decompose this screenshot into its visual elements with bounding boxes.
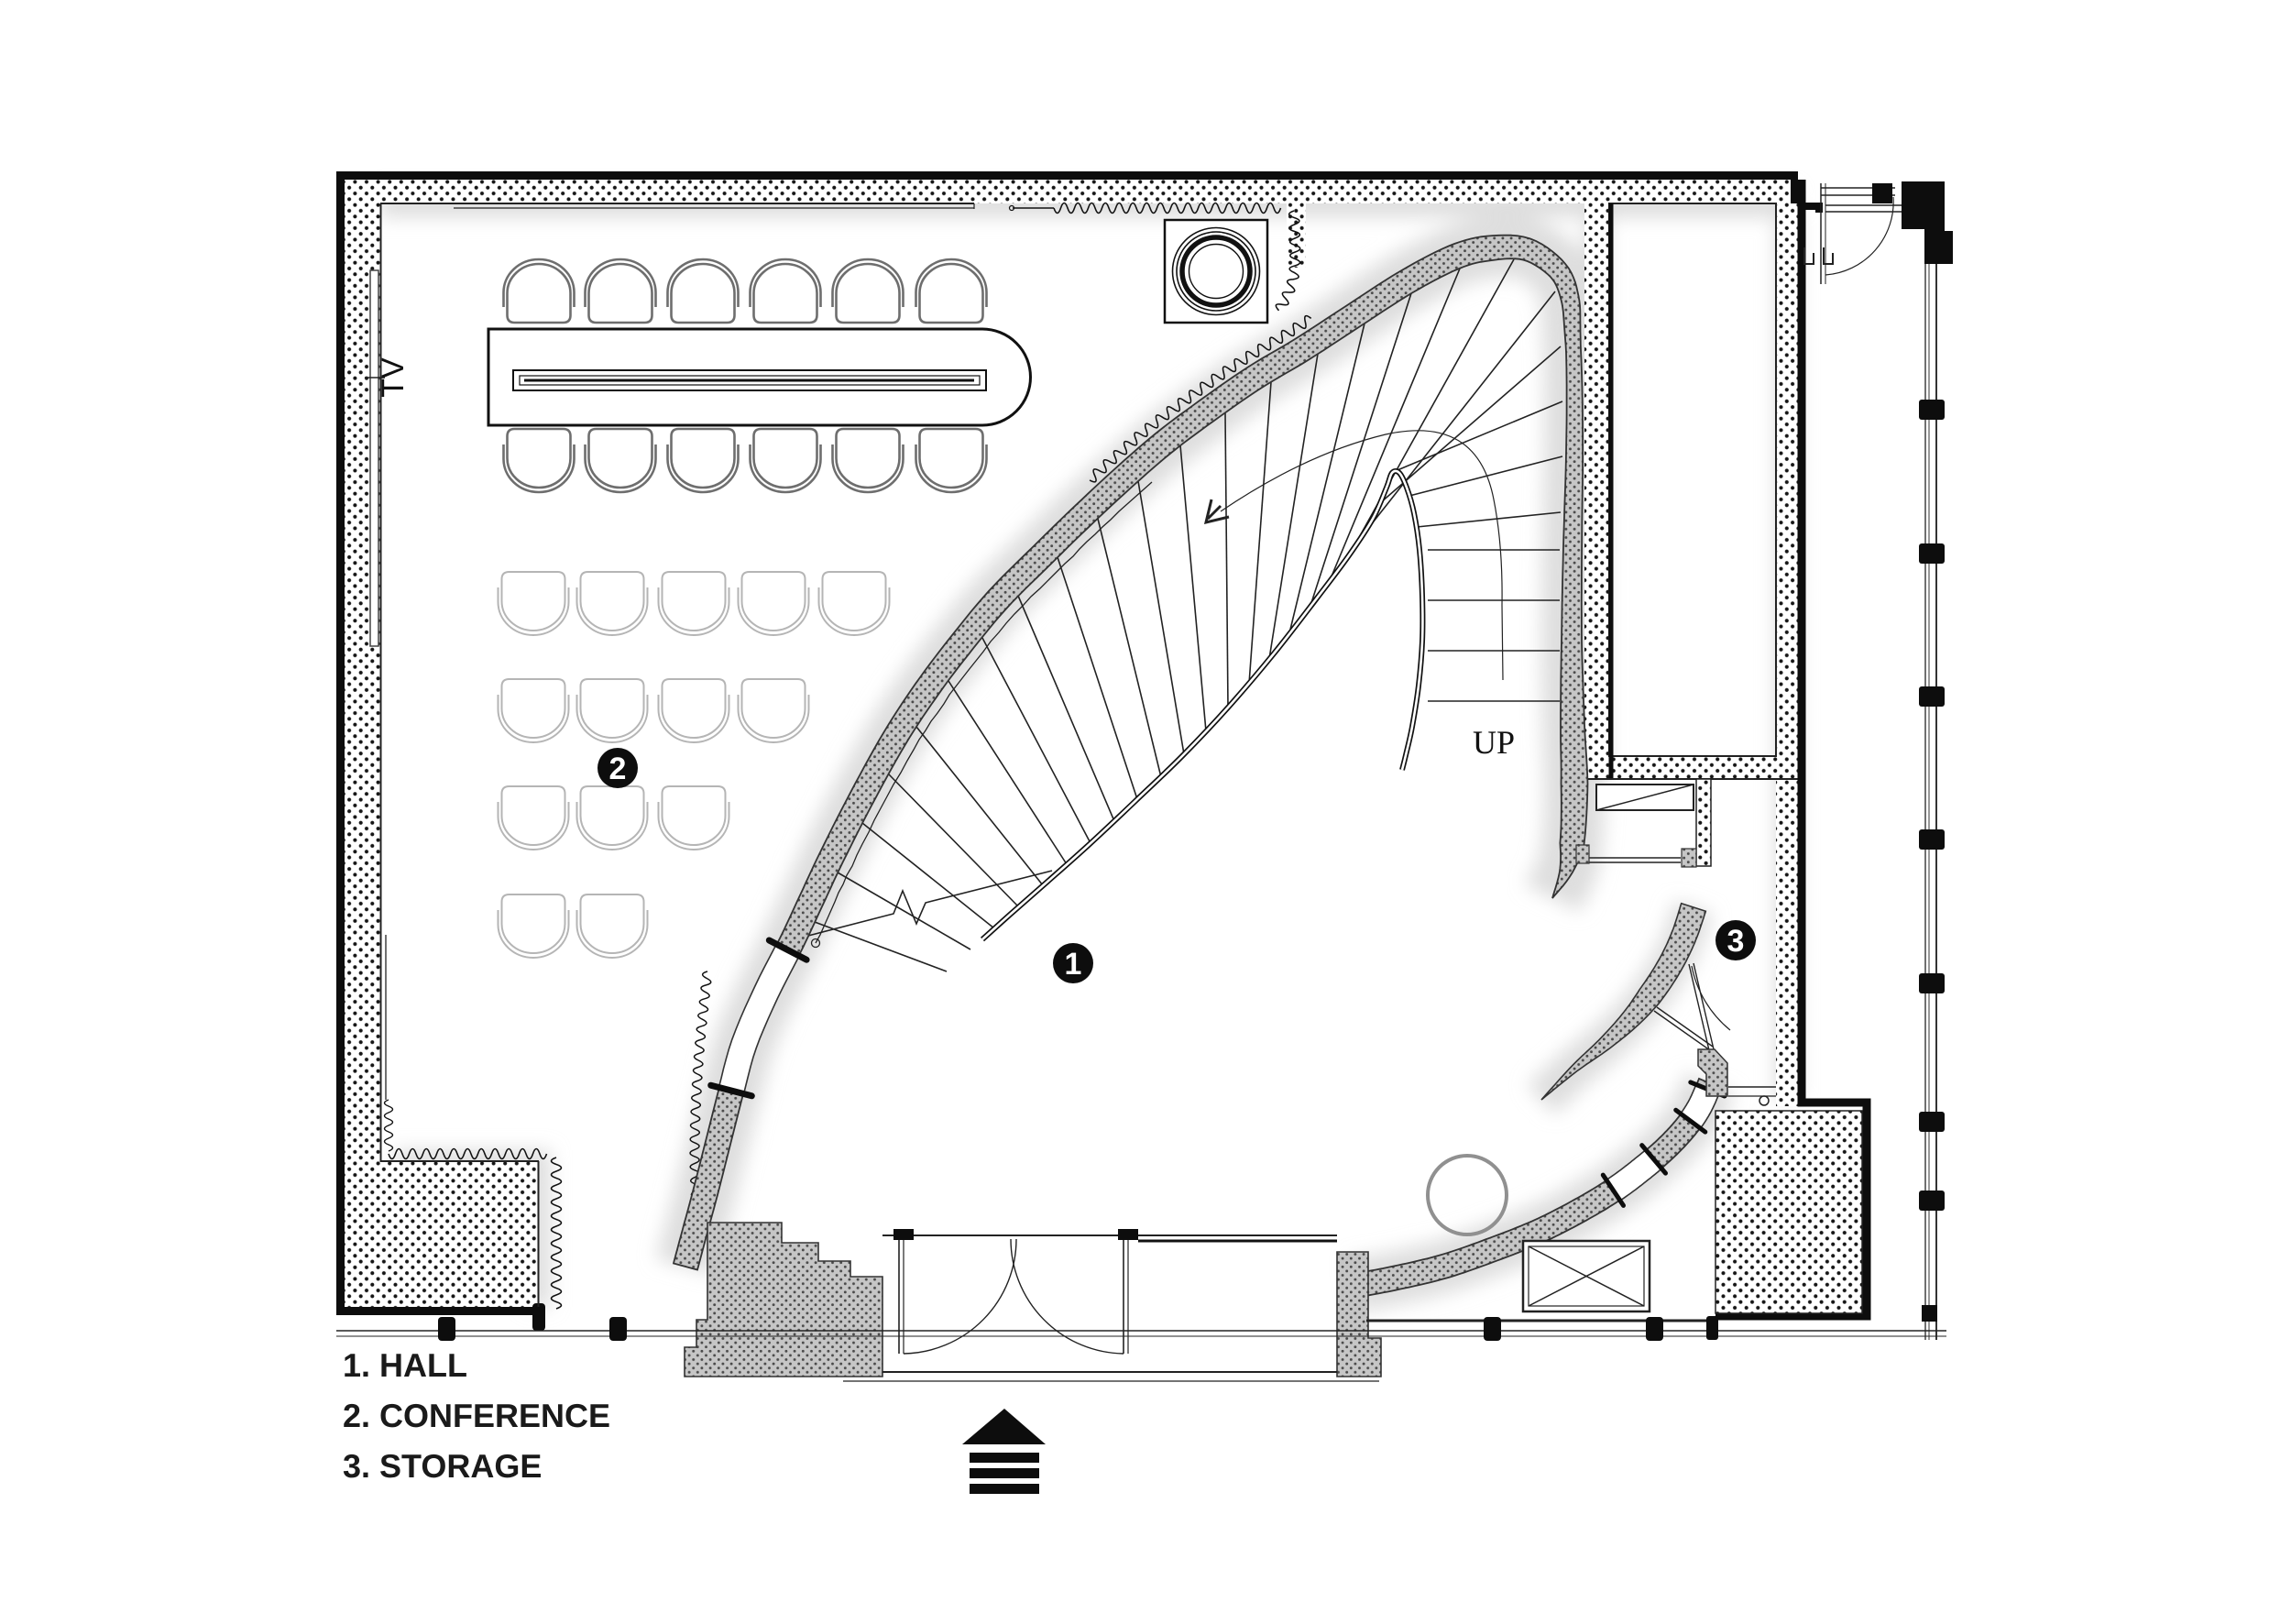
svg-text:2. CONFERENCE: 2. CONFERENCE: [343, 1397, 610, 1434]
svg-text:3: 3: [1727, 924, 1745, 959]
svg-text:1: 1: [1065, 947, 1082, 982]
svg-text:1. HALL: 1. HALL: [343, 1346, 467, 1384]
svg-text:TV: TV: [376, 357, 411, 398]
svg-text:UP: UP: [1473, 724, 1515, 761]
svg-text:2: 2: [609, 752, 627, 786]
svg-text:3. STORAGE: 3. STORAGE: [343, 1447, 542, 1485]
